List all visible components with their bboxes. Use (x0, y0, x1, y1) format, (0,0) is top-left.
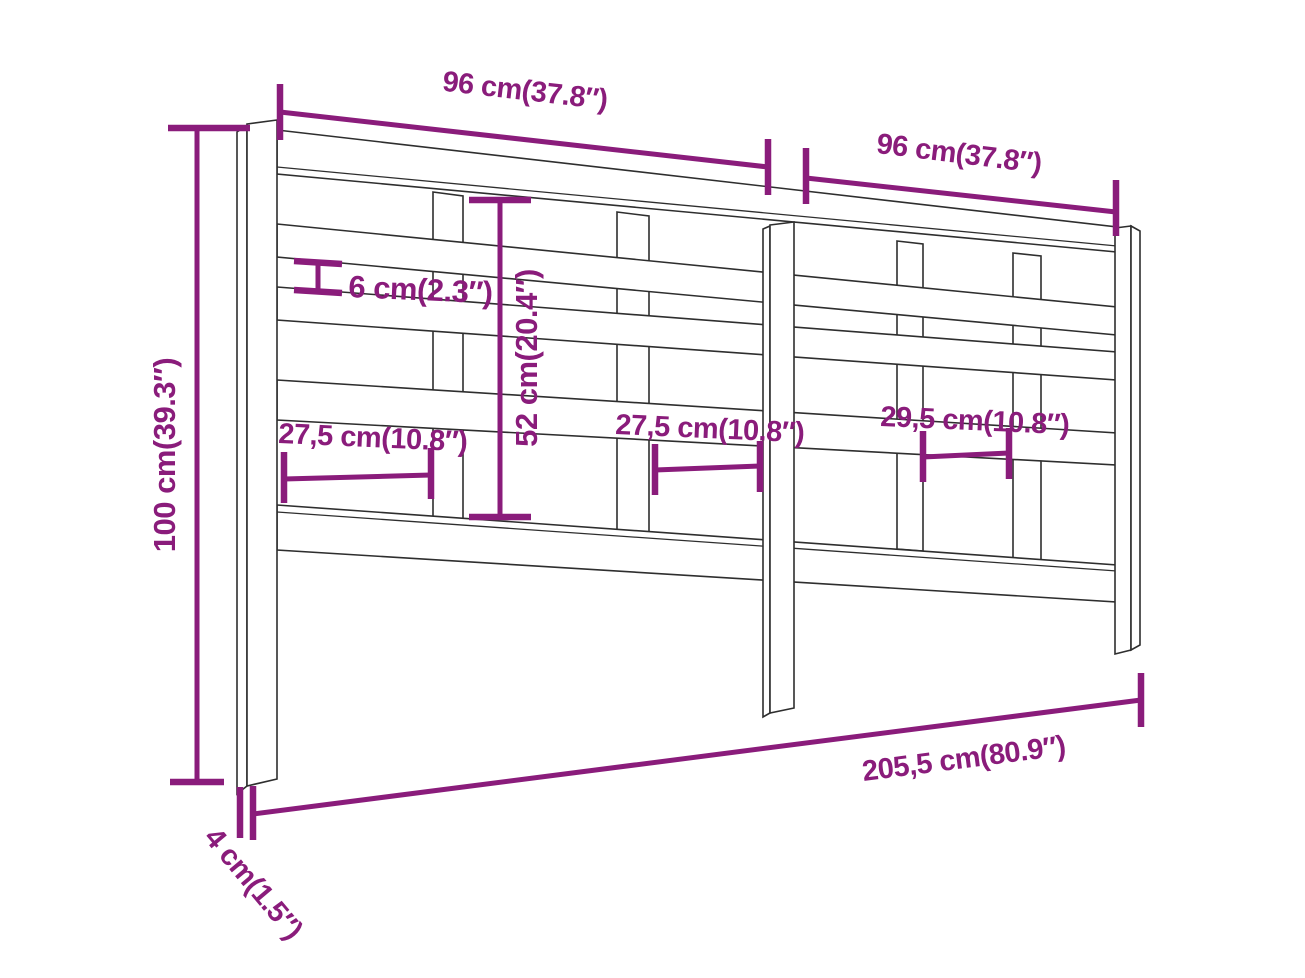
left-post (247, 120, 277, 786)
bottom-rail (277, 505, 1117, 602)
dimension-label: 27,5 cm(10.8″) (278, 418, 468, 458)
center-post (770, 222, 794, 713)
dimension-label: 52 cm(20.4″) (509, 269, 544, 447)
right-post (1115, 226, 1131, 654)
dimension-label: 205,5 cm(80.9″) (860, 730, 1067, 788)
dimension-label: 96 cm(37.8″) (875, 128, 1044, 180)
dimension-diagram: 96 cm(37.8″) 96 cm(37.8″) 6 cm(2.3″) 52 … (0, 0, 1305, 978)
dimension-label: 100 cm(39.3″) (147, 358, 182, 552)
right-post-side-face (1131, 226, 1140, 650)
dimension-total-height: 100 cm(39.3″) (147, 128, 250, 782)
dimension-label: 4 cm(1.5″) (198, 822, 309, 946)
dimension-label: 96 cm(37.8″) (441, 66, 609, 117)
left-post-side-face (237, 125, 247, 794)
headboard-drawing: 96 cm(37.8″) 96 cm(37.8″) 6 cm(2.3″) 52 … (0, 0, 1305, 978)
center-post-side-face (763, 226, 770, 717)
dimension-total-width: 205,5 cm(80.9″) (253, 673, 1141, 840)
dimension-label: 6 cm(2.3″) (348, 269, 494, 310)
dimension-line (655, 466, 760, 470)
dimension-line (284, 475, 431, 479)
